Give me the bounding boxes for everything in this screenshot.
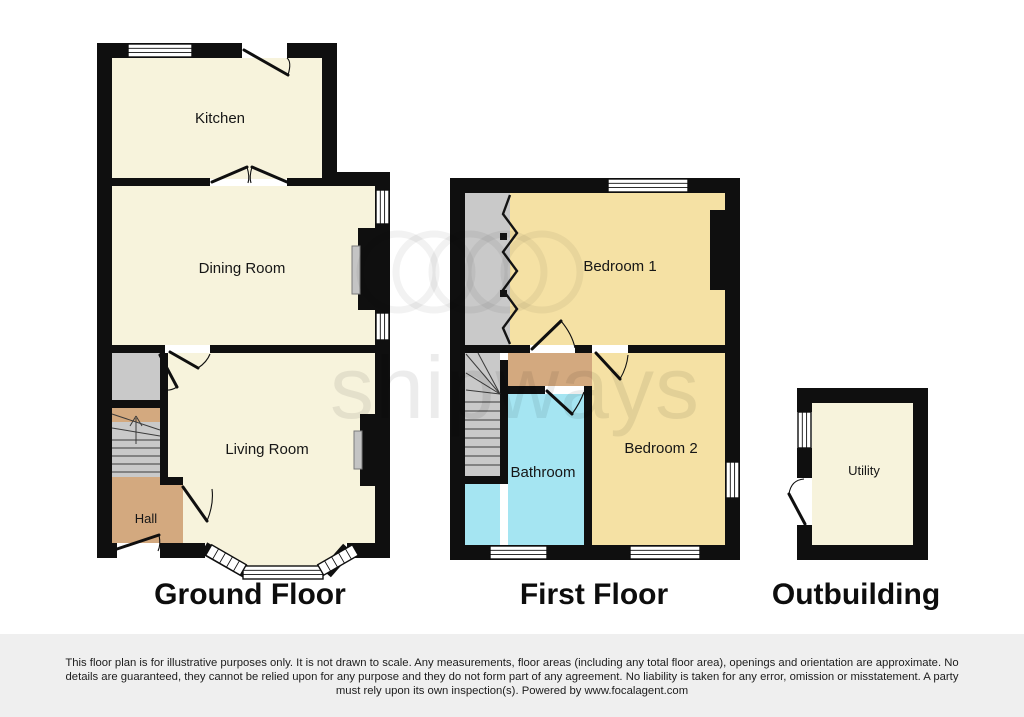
label-bedroom-1: Bedroom 1 — [583, 258, 656, 275]
label-hall: Hall — [135, 511, 158, 526]
disclaimer-line: details are guaranteed, they cannot be r… — [0, 670, 1024, 684]
disclaimer-line: This floor plan is for illustrative purp… — [0, 656, 1024, 670]
disclaimer-line: must rely upon its own inspection(s). Po… — [0, 684, 1024, 698]
label-living-room: Living Room — [225, 441, 308, 458]
window-symbol — [630, 546, 700, 559]
floor-plan-page: shipways Kitchen Dining Room Living Room… — [0, 0, 1024, 717]
window-symbol — [376, 313, 389, 340]
window-symbol — [128, 44, 192, 57]
window-symbol — [608, 179, 688, 192]
window-symbol — [726, 462, 739, 498]
window-symbol — [798, 412, 811, 448]
watermark-text: shipways — [330, 338, 700, 437]
title-first-floor: First Floor — [520, 578, 668, 612]
label-bedroom-2: Bedroom 2 — [624, 440, 697, 457]
window-symbol — [490, 546, 547, 559]
title-outbuilding: Outbuilding — [772, 578, 940, 612]
disclaimer: This floor plan is for illustrative purp… — [0, 656, 1024, 698]
label-dining-room: Dining Room — [199, 260, 286, 277]
door-symbol — [789, 479, 805, 524]
label-bathroom: Bathroom — [510, 464, 575, 481]
label-utility: Utility — [848, 463, 880, 478]
label-kitchen: Kitchen — [195, 110, 245, 127]
window-symbol — [376, 190, 389, 224]
ground-closet — [112, 353, 160, 400]
floor-plan-drawing: shipways Kitchen Dining Room Living Room… — [0, 0, 1024, 645]
room-hall — [112, 477, 183, 543]
title-ground-floor: Ground Floor — [154, 578, 346, 612]
